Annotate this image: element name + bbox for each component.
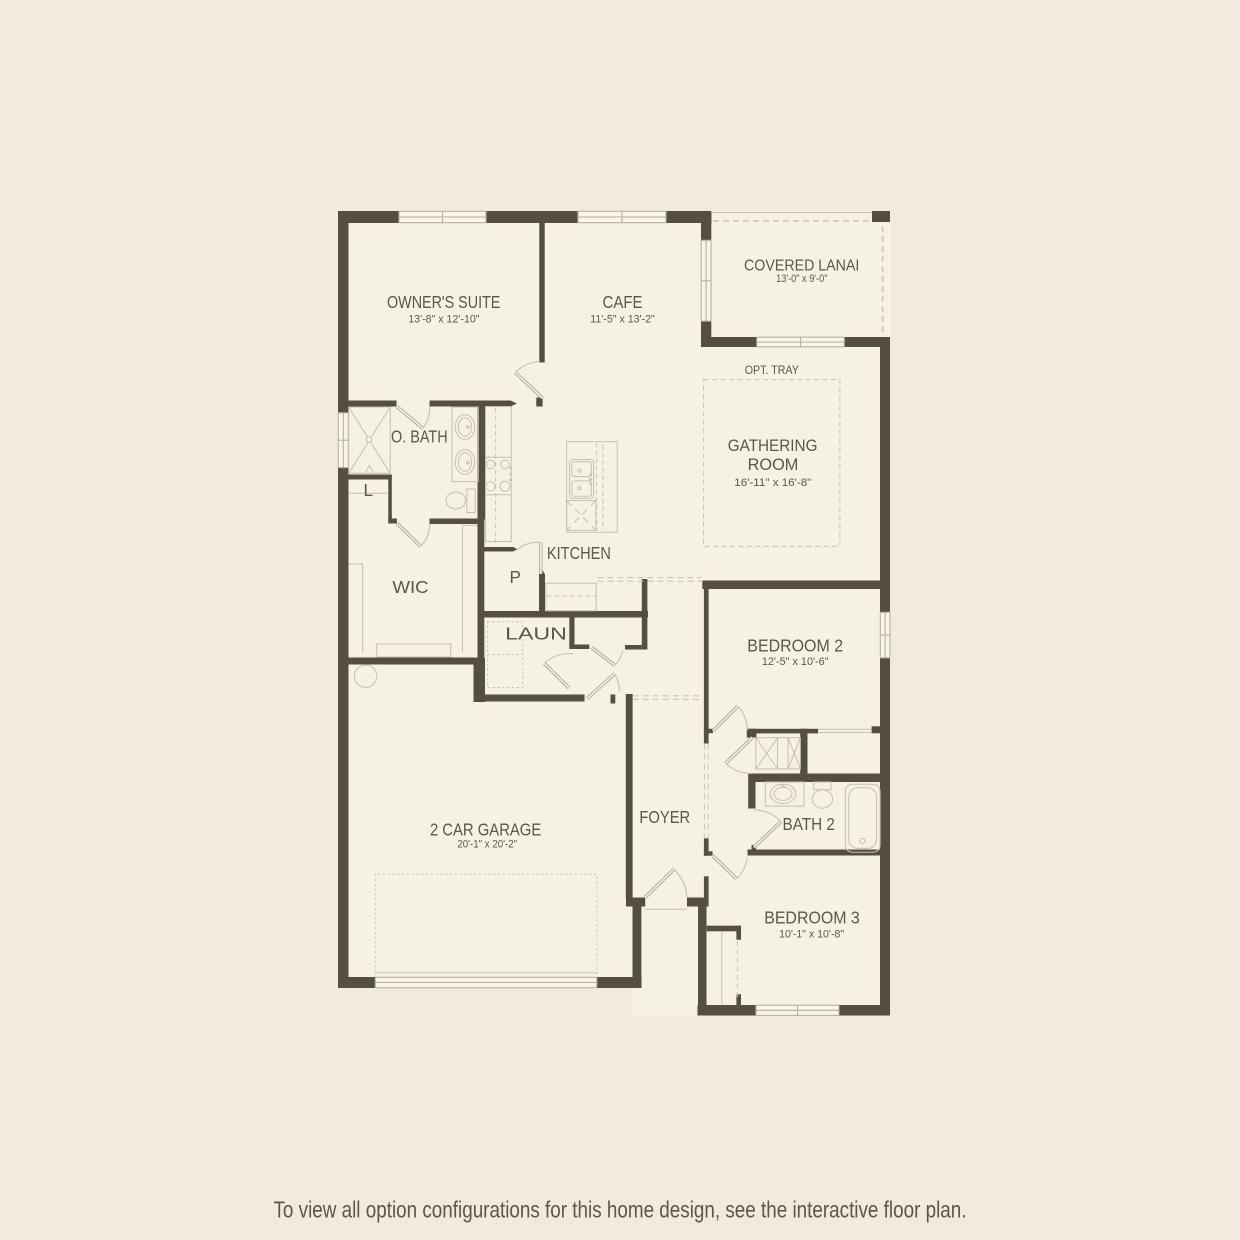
svg-text:13'-8" x 12'-10": 13'-8" x 12'-10" — [408, 313, 479, 325]
svg-text:2 CAR GARAGE: 2 CAR GARAGE — [430, 819, 541, 839]
svg-text:ROOM: ROOM — [748, 455, 799, 474]
svg-text:P: P — [509, 567, 520, 587]
svg-text:11'-5" x 13'-2": 11'-5" x 13'-2" — [590, 313, 655, 325]
svg-text:COVERED LANAI: COVERED LANAI — [744, 257, 859, 274]
svg-text:16'-11" x 16'-8": 16'-11" x 16'-8" — [734, 477, 811, 489]
svg-text:12'-5" x 10'-6": 12'-5" x 10'-6" — [762, 656, 829, 668]
svg-text:13'-0" x 9'-0": 13'-0" x 9'-0" — [776, 273, 827, 285]
svg-text:FOYER: FOYER — [639, 807, 690, 827]
svg-text:GATHERING: GATHERING — [728, 436, 818, 455]
svg-text:To view all option configurati: To view all option configurations for th… — [274, 1197, 967, 1223]
svg-text:WIC: WIC — [392, 577, 428, 597]
svg-text:LAUN: LAUN — [505, 623, 567, 643]
svg-text:10'-1" x 10'-8": 10'-1" x 10'-8" — [779, 929, 844, 941]
svg-text:BEDROOM 2: BEDROOM 2 — [747, 636, 843, 656]
svg-text:BATH 2: BATH 2 — [783, 814, 835, 834]
svg-text:BEDROOM 3: BEDROOM 3 — [764, 908, 860, 928]
svg-text:CAFE: CAFE — [603, 292, 643, 312]
svg-text:KITCHEN: KITCHEN — [547, 543, 611, 563]
svg-text:20'-1" x 20'-2": 20'-1" x 20'-2" — [457, 839, 517, 851]
svg-text:OWNER'S SUITE: OWNER'S SUITE — [387, 292, 500, 312]
svg-text:O. BATH: O. BATH — [391, 426, 448, 446]
svg-text:OPT. TRAY: OPT. TRAY — [745, 363, 799, 377]
svg-text:L: L — [364, 480, 374, 500]
